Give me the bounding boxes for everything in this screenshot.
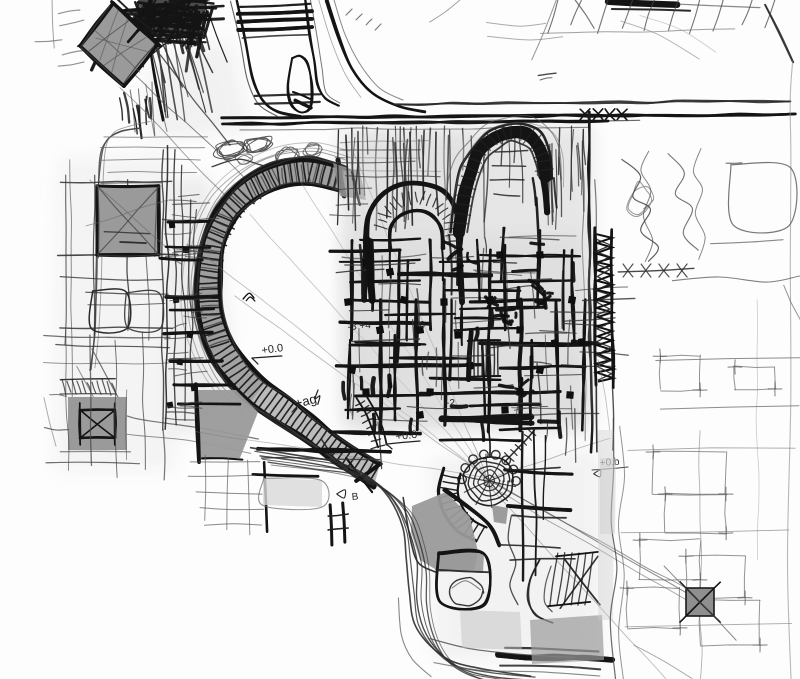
svg-text:-2: -2 [446,398,455,409]
svg-text:-6: -6 [416,320,425,331]
svg-text:-3 +4: -3 +4 [347,320,371,333]
svg-text:B: B [351,491,359,503]
